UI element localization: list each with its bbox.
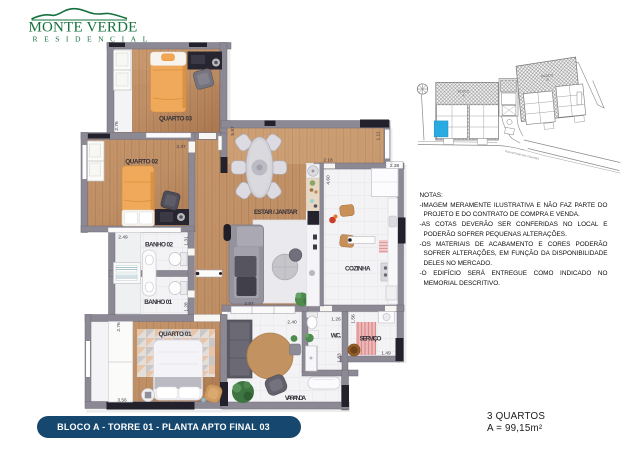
svg-text:2.18: 2.18 xyxy=(323,158,333,164)
svg-text:1.49: 1.49 xyxy=(381,351,391,357)
svg-text:QUARTO 01: QUARTO 01 xyxy=(159,331,192,338)
svg-text:BANHO 02: BANHO 02 xyxy=(145,242,173,249)
svg-text:RUA ARTHUR BIG TERASSA: RUA ARTHUR BIG TERASSA xyxy=(505,149,540,161)
svg-text:5.97: 5.97 xyxy=(230,126,236,136)
svg-text:3.56: 3.56 xyxy=(117,398,127,404)
svg-text:3.37: 3.37 xyxy=(176,144,186,150)
svg-text:1.31: 1.31 xyxy=(184,236,190,246)
svg-text:VARANDA: VARANDA xyxy=(285,395,307,402)
svg-text:2.76: 2.76 xyxy=(116,322,122,332)
svg-text:4.60: 4.60 xyxy=(326,175,332,185)
svg-text:MONTE VERDE: MONTE VERDE xyxy=(28,19,137,35)
svg-text:2.76: 2.76 xyxy=(114,121,120,131)
svg-text:1.11: 1.11 xyxy=(376,131,382,140)
svg-text:RESIDENCIAL: RESIDENCIAL xyxy=(33,34,154,43)
svg-text:1.26: 1.26 xyxy=(331,317,341,323)
svg-text:QUARTO 02: QUARTO 02 xyxy=(125,159,158,166)
svg-text:2.97: 2.97 xyxy=(244,301,254,307)
svg-text:W.C.: W.C. xyxy=(331,333,342,340)
svg-text:ESTAR / JANTAR: ESTAR / JANTAR xyxy=(254,209,298,216)
svg-text:1.56: 1.56 xyxy=(351,314,357,324)
svg-text:2.38: 2.38 xyxy=(390,163,400,169)
svg-text:1.28: 1.28 xyxy=(184,302,190,312)
svg-text:SERVIÇO: SERVIÇO xyxy=(360,336,382,343)
svg-text:2.49: 2.49 xyxy=(118,235,128,241)
svg-text:QUARTO 03: QUARTO 03 xyxy=(159,116,192,123)
svg-text:COZINHA: COZINHA xyxy=(345,266,371,273)
svg-text:BANHO 01: BANHO 01 xyxy=(144,299,172,306)
svg-text:2.40: 2.40 xyxy=(287,320,297,326)
svg-text:1.83: 1.83 xyxy=(337,353,343,363)
